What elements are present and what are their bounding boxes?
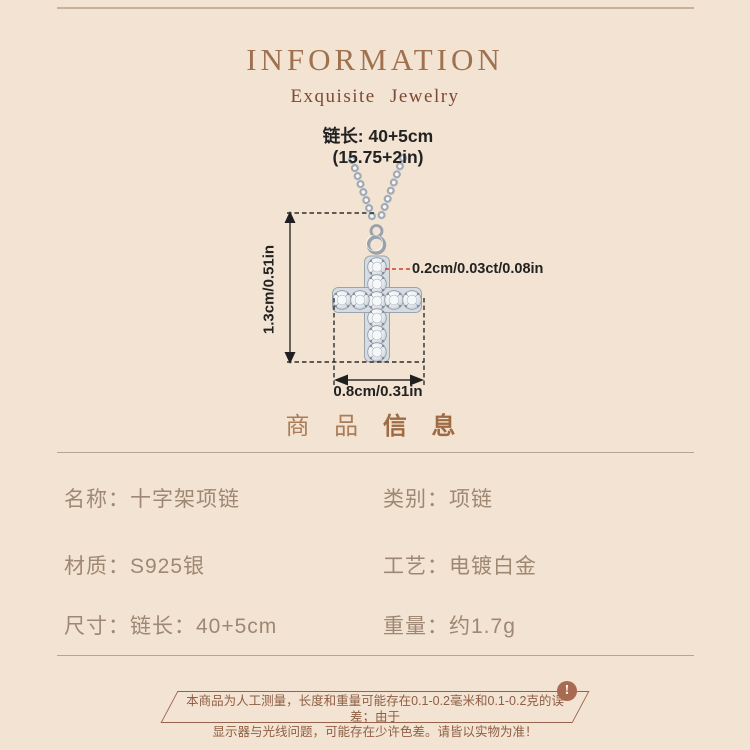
spec-size: 尺寸：链长：40+5cm bbox=[64, 610, 277, 640]
spec-weight: 重量：约1.7g bbox=[383, 610, 516, 640]
stone-size-label: 0.2cm/0.03ct/0.08in bbox=[412, 261, 543, 277]
spec-material: 材质：S925银 bbox=[64, 550, 205, 580]
pendant-height-label: 1.3cm/0.51in bbox=[261, 240, 278, 340]
product-information-page: INFORMATION Exquisite Jewelry bbox=[0, 0, 750, 750]
cross-pendant bbox=[333, 256, 422, 362]
chain-length-label: 链长: 40+5cm (15.75+2in) bbox=[278, 126, 478, 168]
product-figure: 链长: 40+5cm (15.75+2in) 1.3cm/0.51in 0.2c… bbox=[0, 0, 750, 420]
chain-length-cm: 链长: 40+5cm bbox=[278, 126, 478, 147]
spec-category: 类别：项链 bbox=[383, 483, 493, 513]
specs-divider-bottom bbox=[57, 655, 694, 656]
disclaimer-line1: 本商品为人工测量，长度和重量可能存在0.1-0.2毫米和0.1-0.2克的误差；… bbox=[175, 694, 575, 725]
section-heading: 商 品 信 息 bbox=[0, 406, 750, 441]
disclaimer-text: 本商品为人工测量，长度和重量可能存在0.1-0.2毫米和0.1-0.2克的误差；… bbox=[175, 694, 575, 741]
chain-length-in: (15.75+2in) bbox=[278, 147, 478, 168]
bail-rings bbox=[367, 226, 385, 254]
spec-name: 名称：十字架项链 bbox=[64, 483, 240, 513]
section-heading-light: 商 品 bbox=[285, 413, 367, 440]
necklace-pendant-illustration bbox=[230, 150, 550, 410]
spec-craft: 工艺：电镀白金 bbox=[383, 550, 537, 580]
exclamation-badge-icon: ! bbox=[557, 681, 577, 701]
pendant-width-label: 0.8cm/0.31in bbox=[328, 383, 428, 400]
disclaimer-line2: 显示器与光线问题，可能存在少许色差。请皆以实物为准！ bbox=[175, 725, 575, 741]
section-heading-bold: 信 息 bbox=[383, 413, 465, 440]
specs-divider-top bbox=[57, 452, 694, 453]
